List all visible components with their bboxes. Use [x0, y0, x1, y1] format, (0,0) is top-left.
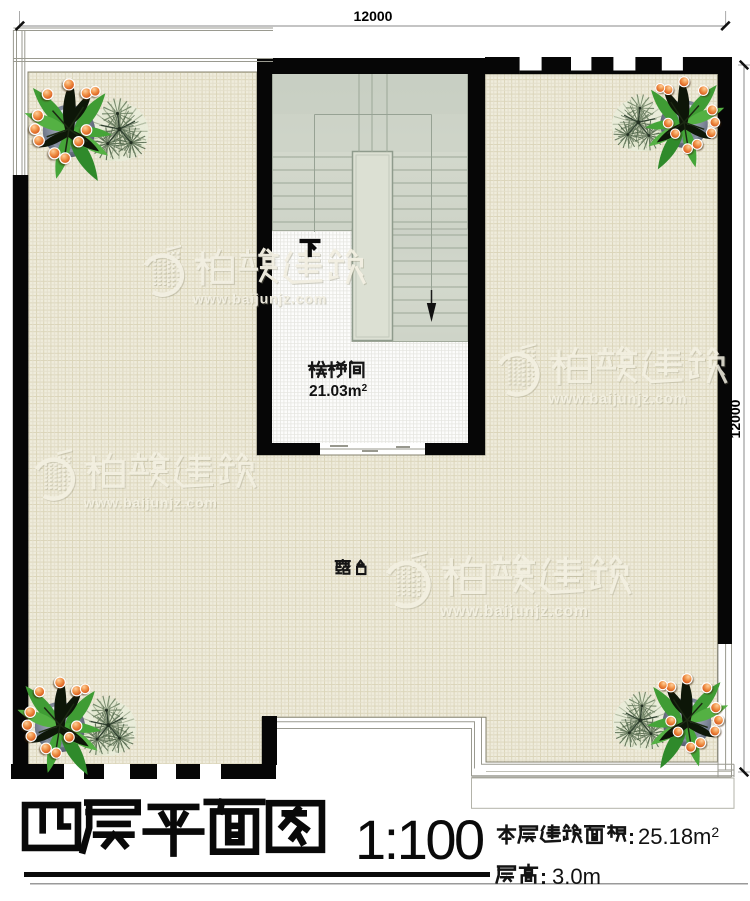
svg-text::: : [540, 866, 547, 889]
svg-text:1:100: 1:100 [355, 808, 483, 871]
svg-text:12000: 12000 [727, 399, 743, 438]
svg-text:25.18m2: 25.18m2 [638, 824, 719, 849]
svg-text:3.0m: 3.0m [552, 864, 601, 889]
svg-text:21.03m2: 21.03m2 [309, 383, 368, 400]
svg-text:12000: 12000 [354, 8, 393, 24]
svg-text::: : [628, 826, 635, 849]
